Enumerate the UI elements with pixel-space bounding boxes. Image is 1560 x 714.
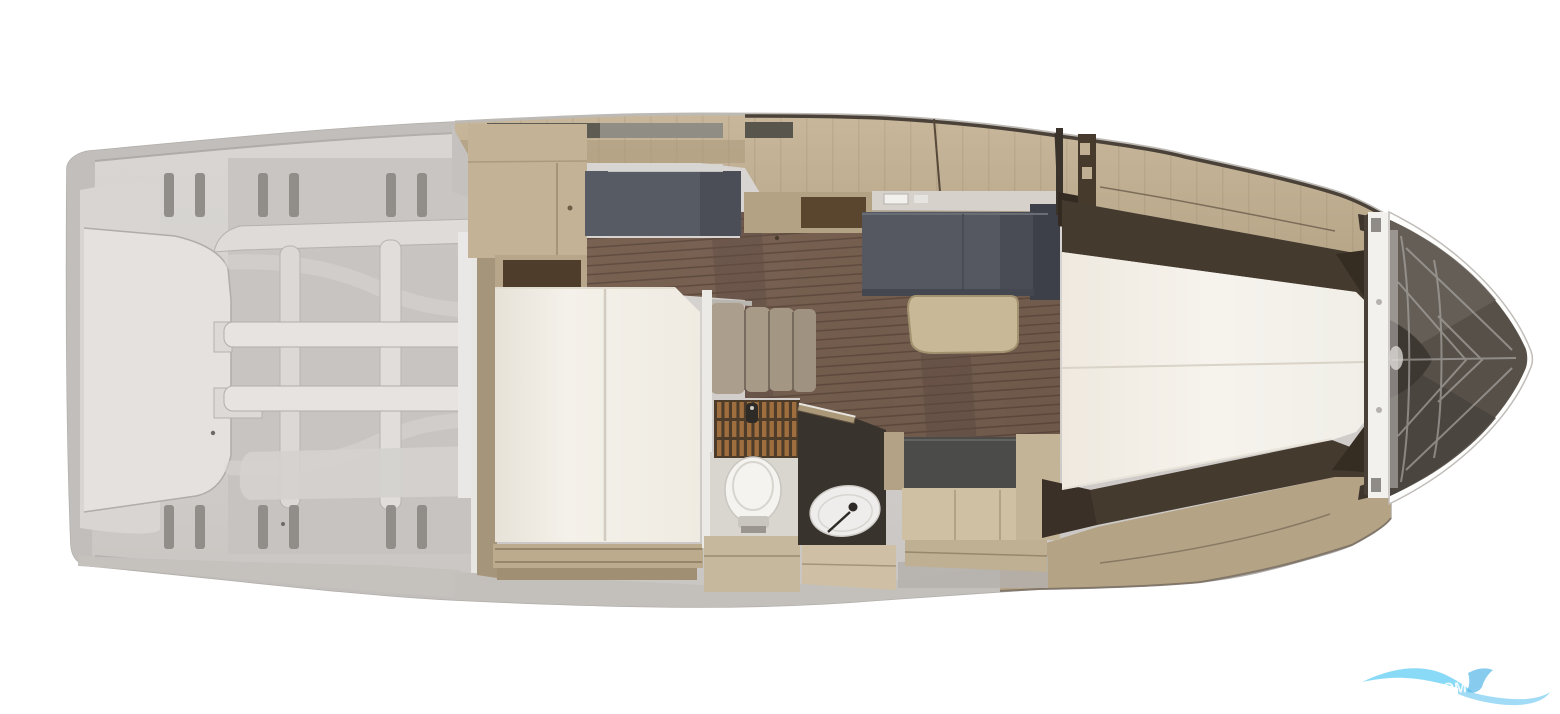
svg-text:COM: COM (1431, 679, 1467, 698)
